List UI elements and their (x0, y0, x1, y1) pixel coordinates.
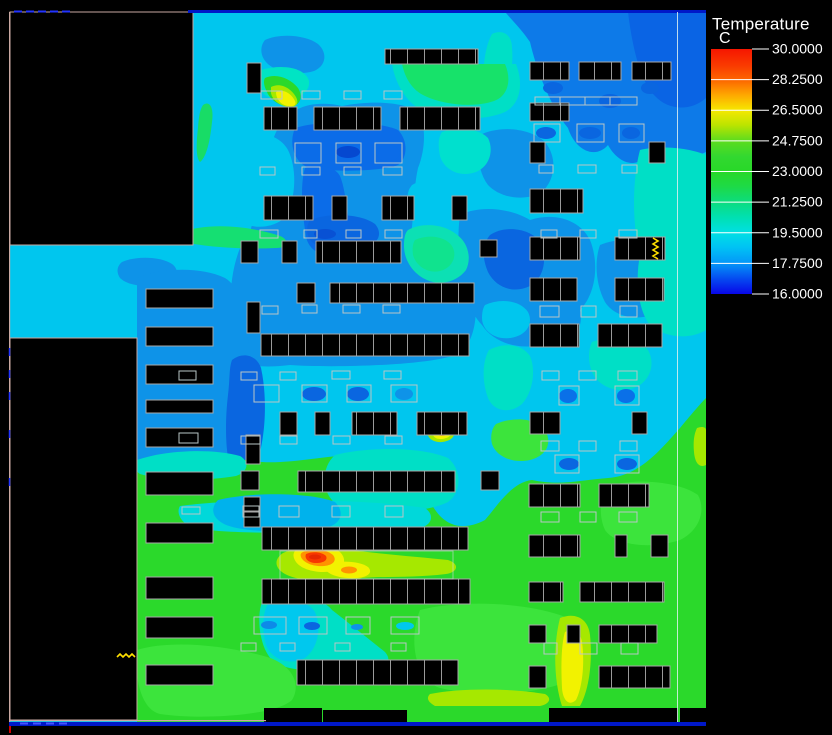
svg-text:16.0000: 16.0000 (772, 286, 823, 302)
svg-text:C: C (719, 30, 731, 47)
svg-text:23.0000: 23.0000 (772, 163, 823, 179)
svg-text:21.2500: 21.2500 (772, 194, 823, 210)
svg-text:26.5000: 26.5000 (772, 102, 823, 118)
svg-text:30.0000: 30.0000 (772, 41, 823, 57)
svg-text:24.7500: 24.7500 (772, 132, 823, 148)
svg-text:17.7500: 17.7500 (772, 255, 823, 271)
svg-text:28.2500: 28.2500 (772, 71, 823, 87)
svg-text:19.5000: 19.5000 (772, 224, 823, 240)
